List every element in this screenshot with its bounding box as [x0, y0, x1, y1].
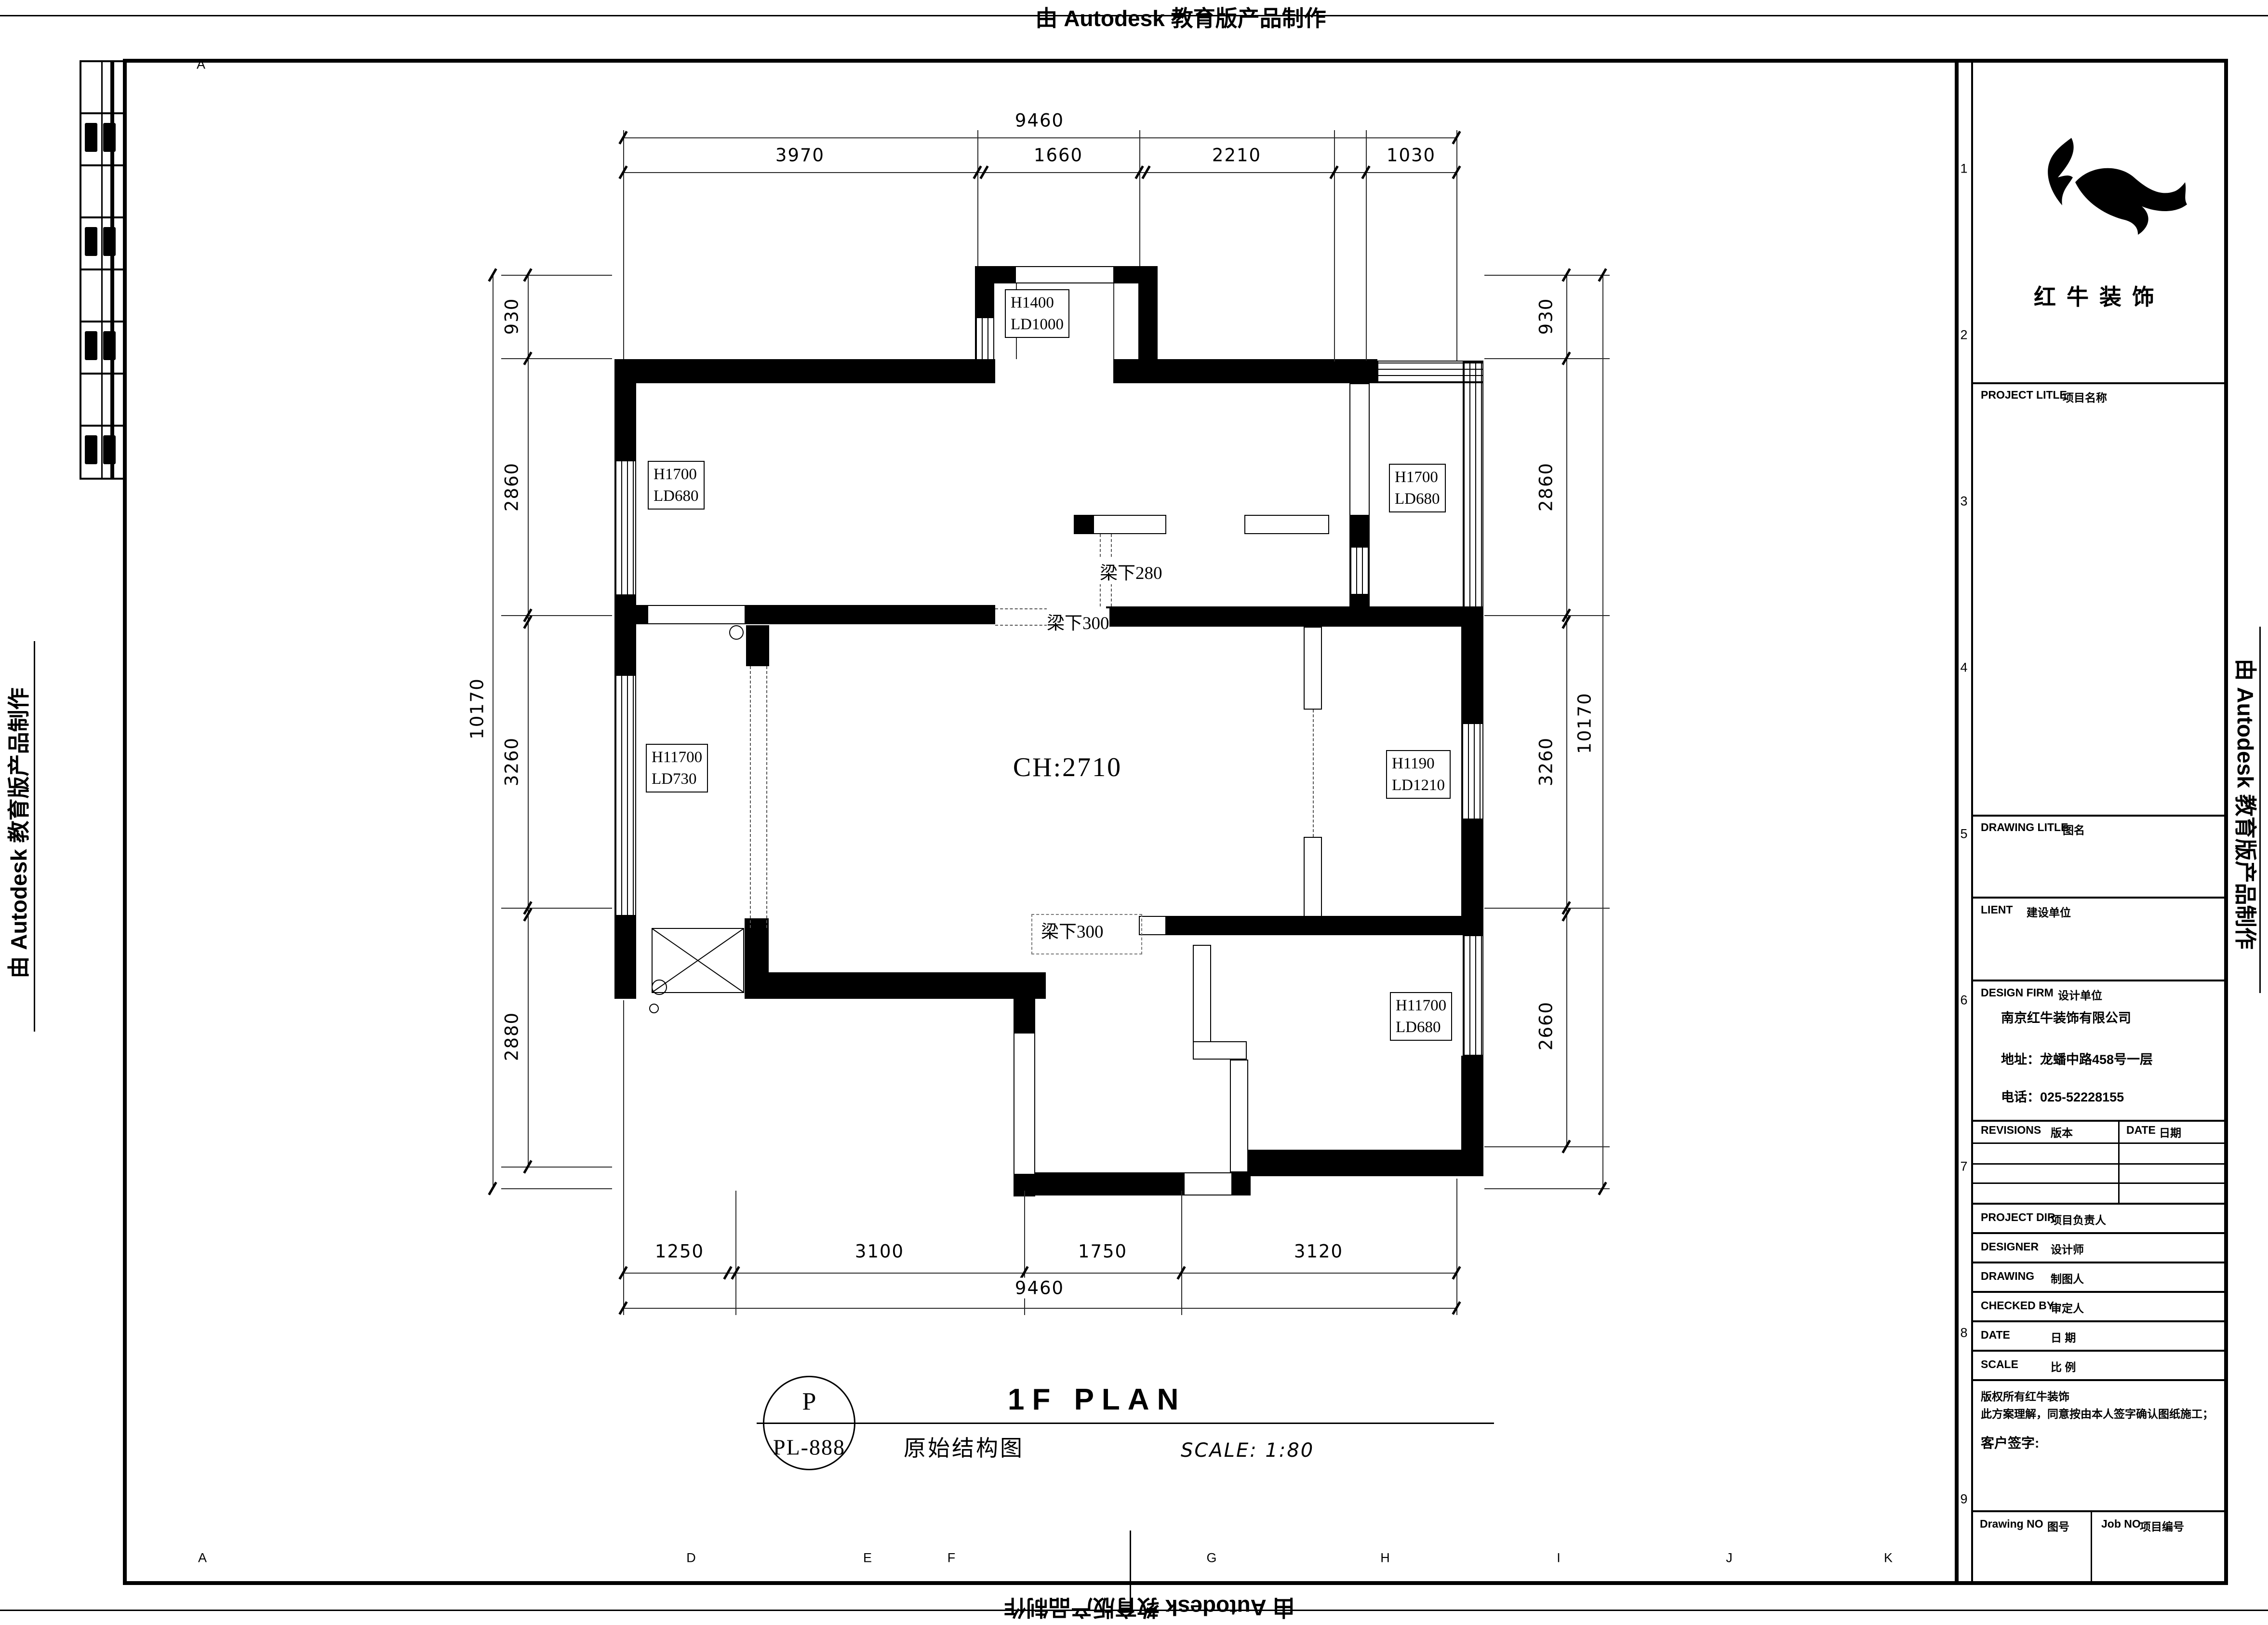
wall	[1231, 1150, 1483, 1176]
drawing-no-en: Drawing NO	[1980, 1518, 2043, 1531]
strip-text-blob	[85, 331, 97, 360]
strip-text-blob	[103, 123, 116, 152]
thin-wall	[1139, 916, 1166, 935]
tag-line: H1700	[1395, 467, 1440, 488]
plan-scale: SCALE: 1:80	[1181, 1439, 1314, 1462]
wall	[1035, 1172, 1185, 1195]
extension-line	[1456, 1179, 1457, 1315]
dim-bottom-seg: 1250	[652, 1241, 707, 1262]
dim-right-seg: 3260	[1536, 734, 1557, 789]
dim-left-seg: 930	[502, 295, 522, 338]
tb-line	[1971, 1262, 2228, 1263]
confirm-note: 此方案理解，同意按由本人签字确认图纸施工；	[1981, 1405, 2214, 1421]
dim-top-total: 9460	[1012, 110, 1067, 131]
extension-line	[1484, 908, 1610, 909]
window	[1463, 362, 1483, 627]
extension-line	[1181, 1191, 1182, 1315]
grid-number: 8	[1960, 1326, 1967, 1341]
bubble-letter: P	[802, 1388, 816, 1416]
field-project-title-cn: 项目名称	[2063, 389, 2107, 405]
grid-letter: J	[1726, 1551, 1733, 1566]
brand-name: 红牛装饰	[2034, 280, 2165, 311]
extension-line	[1456, 130, 1457, 361]
staff-cn: 审定人	[2051, 1299, 2084, 1316]
window	[1463, 935, 1483, 1056]
strip-line	[80, 478, 124, 480]
grid-number: 9	[1960, 1492, 1967, 1507]
strip-text-blob	[85, 227, 97, 256]
thin-wall	[1304, 627, 1322, 710]
strip-line	[80, 269, 124, 270]
dimension-line	[493, 275, 494, 1188]
tb-line	[1971, 1142, 2228, 1144]
grid-letter: D	[686, 1551, 696, 1566]
grid-number: 2	[1960, 328, 1967, 343]
field-client-cn: 建设单位	[2027, 903, 2071, 920]
title-underline	[757, 1423, 1494, 1424]
staff-cn: 制图人	[2051, 1270, 2084, 1286]
room-tag-living-left: H11700 LD730	[646, 744, 708, 792]
revisions-date-cn: 日期	[2159, 1124, 2181, 1140]
tag-line: LD680	[1395, 488, 1440, 510]
extension-line	[1334, 130, 1335, 362]
strip-line	[80, 216, 124, 218]
dimension-line	[623, 137, 1456, 138]
staff-en: DRAWING	[1981, 1270, 2034, 1283]
dim-bottom-seg: 1750	[1075, 1241, 1130, 1262]
thin-wall	[1193, 945, 1211, 1044]
room-tag-mid-right: H1190 LD1210	[1386, 750, 1451, 799]
wall	[745, 972, 1046, 999]
thin-wall	[1304, 837, 1322, 917]
tag-line: H1190	[1392, 753, 1445, 775]
tag-line: LD730	[652, 768, 702, 790]
tag-line: H11700	[1396, 995, 1446, 1017]
wall	[1461, 1056, 1483, 1176]
dashed-line	[1313, 710, 1314, 837]
client-sign-label: 客户签字:	[1981, 1433, 2039, 1452]
extension-line	[501, 1167, 612, 1168]
tb-line	[1971, 1379, 2228, 1381]
extension-line	[623, 130, 624, 359]
staff-cn: 项目负责人	[2051, 1211, 2106, 1227]
tag-line: H11700	[652, 747, 702, 768]
extension-line	[1484, 1188, 1610, 1189]
staff-en: DESIGNER	[1981, 1240, 2039, 1253]
job-no-en: Job NO	[2101, 1518, 2141, 1531]
wall	[1138, 283, 1158, 371]
wall	[614, 605, 648, 624]
floor-plan	[0, 0, 2268, 1625]
revisions-cn: 版本	[2051, 1124, 2073, 1140]
tag-line: LD1210	[1392, 775, 1445, 796]
wall	[1074, 515, 1093, 534]
drawing-sheet: 由 Autodesk 教育版产品制作 由 Autodesk 教育版产品制作 由 …	[0, 0, 2268, 1625]
beam-note-300b: 梁下300	[1041, 917, 1104, 943]
wall	[1106, 606, 1483, 627]
extension-line	[501, 275, 612, 276]
dashed-line	[766, 666, 767, 928]
dimension-line	[623, 1308, 1456, 1309]
grid-number: 6	[1960, 993, 1967, 1008]
copyright-note: 版权所有红牛装饰	[1981, 1387, 2069, 1404]
bubble-number: PL-888	[773, 1435, 845, 1460]
tb-line	[2118, 1120, 2120, 1205]
wall	[1461, 627, 1483, 723]
dim-top-seg: 2210	[1209, 145, 1264, 166]
staff-en: SCALE	[1981, 1358, 2018, 1371]
dim-top-seg: 1030	[1384, 145, 1439, 166]
strip-text-blob	[103, 435, 116, 464]
tb-line	[1971, 1510, 2228, 1512]
dim-top-seg: 1660	[1031, 145, 1086, 166]
window	[975, 317, 994, 361]
field-design-firm-cn: 设计单位	[2058, 986, 2102, 1003]
door-opening	[1016, 266, 1113, 283]
door-opening	[1185, 1172, 1231, 1195]
strip-line	[80, 425, 124, 427]
tb-line	[1971, 1120, 2228, 1122]
beam-note-300a: 梁下300	[1047, 608, 1109, 634]
company-address: 地址：龙蟠中路458号一层	[2001, 1049, 2153, 1068]
tb-line	[1971, 815, 2228, 817]
thin-wall	[1349, 383, 1370, 516]
strip-line	[80, 60, 124, 62]
window	[1349, 547, 1370, 595]
dim-right-total: 10170	[1574, 689, 1595, 757]
strip-text-blob	[85, 123, 97, 152]
dim-left-seg: 2880	[502, 1009, 522, 1064]
thin-wall	[1244, 515, 1329, 534]
wall	[614, 383, 636, 460]
dim-bottom-seg: 3120	[1291, 1241, 1346, 1262]
field-project-title-en: PROJECT LITLE	[1981, 389, 2067, 402]
ceiling-height: CH:2710	[1013, 752, 1122, 783]
wall	[1014, 999, 1035, 1033]
dim-right-seg: 2860	[1536, 459, 1557, 514]
tb-line	[2091, 1510, 2092, 1585]
field-client-en: LIENT	[1981, 903, 2013, 916]
room-tag-bedroom-left: H1700 LD680	[648, 461, 705, 510]
grid-letter: F	[947, 1551, 956, 1566]
revisions-date-en: DATE	[2126, 1124, 2156, 1137]
tb-line	[1971, 1291, 2228, 1293]
extension-line	[1366, 130, 1367, 361]
wall	[614, 359, 995, 383]
grid-number: 5	[1960, 827, 1967, 842]
door-opening	[648, 605, 745, 624]
strip-line	[80, 164, 124, 166]
wall	[1349, 595, 1370, 627]
thin-wall	[1093, 515, 1166, 534]
extension-line	[735, 1191, 736, 1315]
tb-line	[1971, 897, 2228, 899]
company-name: 南京红牛装饰有限公司	[2001, 1007, 2131, 1026]
tb-line	[1971, 1163, 2228, 1165]
dim-left-total: 10170	[467, 675, 488, 742]
staff-en: DATE	[1981, 1329, 2010, 1342]
grid-number: 4	[1960, 660, 1967, 675]
extension-line	[1484, 615, 1610, 616]
grid-letter: K	[1884, 1551, 1893, 1566]
revisions-en: REVISIONS	[1981, 1124, 2041, 1137]
staff-cn: 比 例	[2051, 1358, 2076, 1374]
grid-number: 7	[1960, 1159, 1967, 1174]
wall	[1113, 359, 1377, 383]
staff-cn: 日 期	[2051, 1329, 2076, 1345]
beam-note-280: 梁下280	[1100, 558, 1162, 584]
field-drawing-title-cn: 图名	[2063, 821, 2085, 837]
company-phone: 电话：025-52228155	[2001, 1087, 2124, 1105]
dim-bottom-total: 9460	[1012, 1278, 1067, 1299]
wall	[975, 266, 1016, 283]
staff-en: PROJECT DIR	[1981, 1211, 2055, 1224]
tag-line: LD1000	[1011, 314, 1064, 336]
dim-top-seg: 3970	[773, 145, 827, 166]
staff-cn: 设计师	[2051, 1240, 2084, 1257]
plan-subtitle: 原始结构图	[904, 1431, 1024, 1463]
tb-line	[1971, 1232, 2228, 1234]
dimension-line	[623, 1273, 1456, 1274]
tb-line	[1971, 1320, 2228, 1322]
thin-wall	[1014, 1033, 1035, 1175]
wall	[1349, 515, 1370, 547]
room-tag-bedroom-bottom: H11700 LD680	[1390, 992, 1452, 1041]
grid-letter: E	[863, 1551, 872, 1566]
wall	[745, 605, 995, 624]
extension-line	[977, 130, 978, 266]
dim-right-seg: 2660	[1536, 998, 1557, 1053]
tag-line: LD680	[1396, 1017, 1446, 1038]
dim-left-seg: 3260	[502, 734, 522, 789]
dashed-line	[750, 666, 751, 928]
extension-line	[501, 358, 612, 359]
room-tag-entry: H1400 LD1000	[1005, 289, 1069, 338]
window	[614, 460, 636, 595]
tb-line	[1971, 980, 2228, 981]
tag-line: H1400	[1011, 292, 1064, 314]
grid-number: 3	[1960, 494, 1967, 509]
staff-en: CHECKED BY	[1981, 1299, 2054, 1312]
field-drawing-title-en: DRAWING LITLE	[1981, 821, 2068, 834]
grid-letter: H	[1380, 1551, 1390, 1566]
extension-line	[501, 1188, 612, 1189]
dimension-line	[1566, 275, 1567, 1146]
dim-right-seg: 930	[1536, 295, 1557, 338]
strip-line	[80, 112, 124, 114]
extension-line	[501, 908, 612, 909]
wall	[746, 625, 769, 666]
dimension-line	[623, 172, 1456, 173]
thin-wall	[1230, 1060, 1248, 1172]
drawing-no-cn: 图号	[2047, 1518, 2069, 1534]
strip-text-blob	[103, 227, 116, 256]
wall	[614, 916, 636, 999]
extension-line	[1484, 1146, 1610, 1147]
grid-number: 1	[1960, 161, 1967, 176]
plan-title: 1F PLAN	[1008, 1383, 1186, 1417]
strip-text-blob	[103, 331, 116, 360]
jamb-line	[1113, 283, 1114, 359]
dimension-line	[1602, 275, 1603, 1188]
window	[614, 675, 636, 916]
strip-line	[80, 373, 124, 375]
dimension-line	[528, 275, 529, 1167]
extension-line	[1484, 358, 1610, 359]
room-tag-bedroom-right: H1700 LD680	[1389, 464, 1446, 512]
tb-line	[1971, 382, 2228, 384]
dim-left-seg: 2860	[502, 459, 522, 514]
wall	[1165, 916, 1483, 935]
extension-line	[1484, 275, 1610, 276]
tag-line: LD680	[654, 485, 699, 507]
grid-letter: I	[1557, 1551, 1561, 1566]
window	[1377, 361, 1483, 383]
tb-line	[1971, 1182, 2228, 1184]
dim-bottom-seg: 3100	[852, 1241, 907, 1262]
field-design-firm-en: DESIGN FIRM	[1981, 986, 2054, 999]
strip-line	[80, 321, 124, 322]
extension-line	[1139, 130, 1140, 266]
extension-line	[501, 615, 612, 616]
thin-wall	[1193, 1041, 1247, 1060]
tb-line	[1971, 1350, 2228, 1352]
wall	[1113, 266, 1158, 283]
shaft-box	[652, 928, 744, 993]
wall	[975, 283, 994, 317]
grid-letter: A	[198, 1551, 207, 1566]
tag-line: H1700	[654, 464, 699, 485]
strip-text-blob	[85, 435, 97, 464]
job-no-cn: 项目编号	[2140, 1518, 2184, 1534]
tb-line	[1971, 1203, 2228, 1205]
window	[1461, 723, 1483, 819]
grid-letter: G	[1206, 1551, 1216, 1566]
